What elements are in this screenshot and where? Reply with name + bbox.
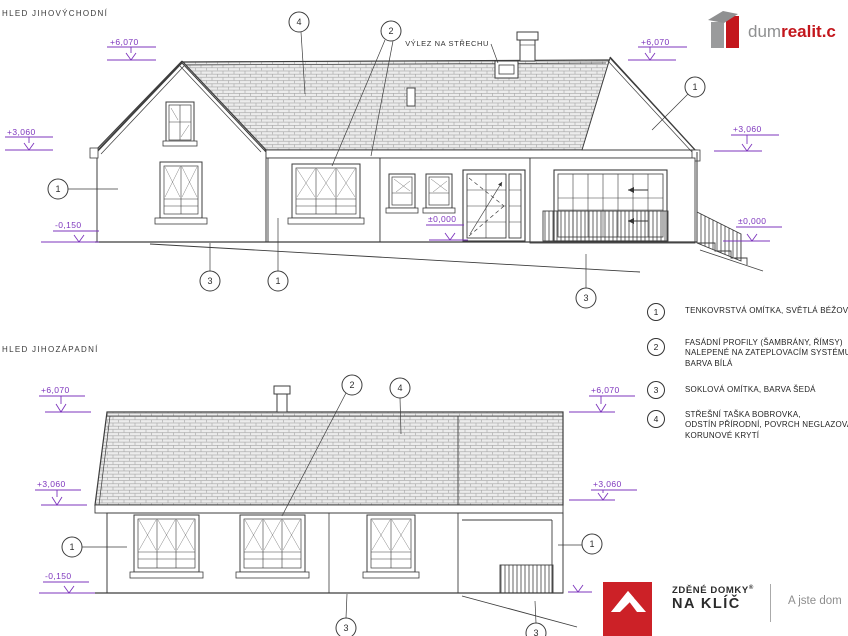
callout-porch: 1 xyxy=(558,534,602,554)
registered-mark: ® xyxy=(749,585,754,591)
callout-number: 1 xyxy=(692,82,697,92)
zdene-domky-logo[interactable]: ZDĚNÉ DOMKY® NA KLÍČ A jste dom xyxy=(600,575,848,636)
callout-number: 3 xyxy=(583,293,588,303)
se-roof-hatch-box xyxy=(495,61,518,78)
logo-name-bottom-text: NA KLÍČ xyxy=(672,596,741,612)
sw-elevation: +6,070 +6,070 +3,060 +3,060 -0,150 2 xyxy=(35,375,637,636)
sw-dim-ridge-left: +6,070 xyxy=(41,385,70,395)
dumrealit-logo[interactable]: dumrealit.c xyxy=(706,4,848,52)
se-dim-ridge-left: +6,070 xyxy=(110,37,139,47)
legend-callout-3: 3 xyxy=(647,381,665,399)
legend-callout-2: 2 xyxy=(647,338,665,356)
brand-name-gray: dum xyxy=(748,22,781,41)
legend-item-4: STŘEŠNÍ TAŠKA BOBROVKA, ODSTÍN PŘÍRODNÍ,… xyxy=(685,410,848,441)
drawing-sheet: VÝLEZ NA STŘECHU xyxy=(0,0,848,636)
zdene-domky-icon xyxy=(603,582,652,636)
se-chimney xyxy=(517,32,538,61)
roof-access-text: VÝLEZ NA STŘECHU xyxy=(405,39,489,48)
se-garage-glazing xyxy=(543,170,668,241)
legend-line: TENKOVRSTVÁ OMÍTKA, SVĚTLÁ BÉŽOVO-ŠEDÁ xyxy=(685,306,848,316)
callout-number: 1 xyxy=(55,184,60,194)
callout-number: 4 xyxy=(397,383,402,393)
dumrealit-icon xyxy=(708,6,744,50)
callout-number: 1 xyxy=(589,539,594,549)
sw-view-title: HLED JIHOZÁPADNÍ xyxy=(2,345,99,354)
legend-item-2: FASÁDNÍ PROFILY (ŠAMBRÁNY, ŘÍMSY) NALEPE… xyxy=(685,338,848,369)
legend-callout-1: 1 xyxy=(647,303,665,321)
se-ground xyxy=(95,242,697,272)
legend-line: BARVA BÍLÁ xyxy=(685,359,848,369)
elevation-drawing: VÝLEZ NA STŘECHU xyxy=(0,0,848,636)
se-roof-access-label: VÝLEZ NA STŘECHU xyxy=(405,39,498,63)
callout-number: 2 xyxy=(388,26,393,36)
callout-terrain: 3 xyxy=(576,254,596,308)
callout-number: 1 xyxy=(275,276,280,286)
sw-floor-mark xyxy=(568,585,592,592)
callout-number: 3 xyxy=(207,276,212,286)
legend-item-1: TENKOVRSTVÁ OMÍTKA, SVĚTLÁ BÉŽOVO-ŠEDÁ xyxy=(685,306,848,316)
se-dim-plinth-left: -0,150 xyxy=(55,220,82,230)
callout-number: 1 xyxy=(69,542,74,552)
brand-name-red: realit.c xyxy=(781,22,836,41)
callout-number: 4 xyxy=(296,17,301,27)
sw-roof xyxy=(95,412,563,513)
se-dim-eave-right: +3,060 xyxy=(733,124,762,134)
callout-plinth: 3 xyxy=(200,243,220,291)
logo-name-top-text: ZDĚNÉ DOMKY xyxy=(672,585,749,596)
callout-terrain: 3 xyxy=(526,601,546,636)
callout-plinth: 3 xyxy=(336,594,356,636)
sw-dim-eave-right: +3,060 xyxy=(593,479,622,489)
se-dim-floor-center: ±0,000 xyxy=(428,214,456,224)
se-entrance-door xyxy=(463,170,525,241)
legend-line: SOKLOVÁ OMÍTKA, BARVA ŠEDÁ xyxy=(685,385,816,395)
sw-dim-plinth-left: -0,150 xyxy=(45,571,72,581)
sw-ground xyxy=(95,593,577,627)
legend-line: NALEPENÉ NA ZATEPLOVACÍM SYSTÉMU xyxy=(685,348,848,358)
sw-dim-ridge-right: +6,070 xyxy=(591,385,620,395)
se-elevation: VÝLEZ NA STŘECHU xyxy=(5,12,782,308)
logo-divider xyxy=(770,584,771,622)
callout-gable-right: 1 xyxy=(652,77,705,130)
legend-line: FASÁDNÍ PROFILY (ŠAMBRÁNY, ŘÍMSY) xyxy=(685,338,848,348)
sw-chimney xyxy=(274,386,290,412)
sw-windows xyxy=(130,515,419,578)
sw-dim-eave-left: +3,060 xyxy=(37,479,66,489)
logo-tagline: A jste dom xyxy=(788,595,842,607)
legend-callout-4: 4 xyxy=(647,410,665,428)
callout-number: 2 xyxy=(349,380,354,390)
se-view-title: HLED JIHOVÝCHODNÍ xyxy=(2,9,108,18)
legend-line: ODSTÍN PŘÍRODNÍ, POVRCH NEGLAZOVANÝ, xyxy=(685,420,848,430)
se-dim-ridge-right: +6,070 xyxy=(641,37,670,47)
callout-number: 3 xyxy=(343,623,348,633)
legend-item-3: SOKLOVÁ OMÍTKA, BARVA ŠEDÁ xyxy=(685,385,816,395)
se-dim-floor-right: ±0,000 xyxy=(738,216,766,226)
roof-icon xyxy=(603,582,652,636)
legend-line: KORUNOVÉ KRYTÍ xyxy=(685,431,848,441)
callout-number: 3 xyxy=(533,628,538,636)
legend-line: STŘEŠNÍ TAŠKA BOBROVKA, xyxy=(685,410,848,420)
se-dim-eave-left: +3,060 xyxy=(7,127,36,137)
se-roof-vent xyxy=(407,88,415,106)
